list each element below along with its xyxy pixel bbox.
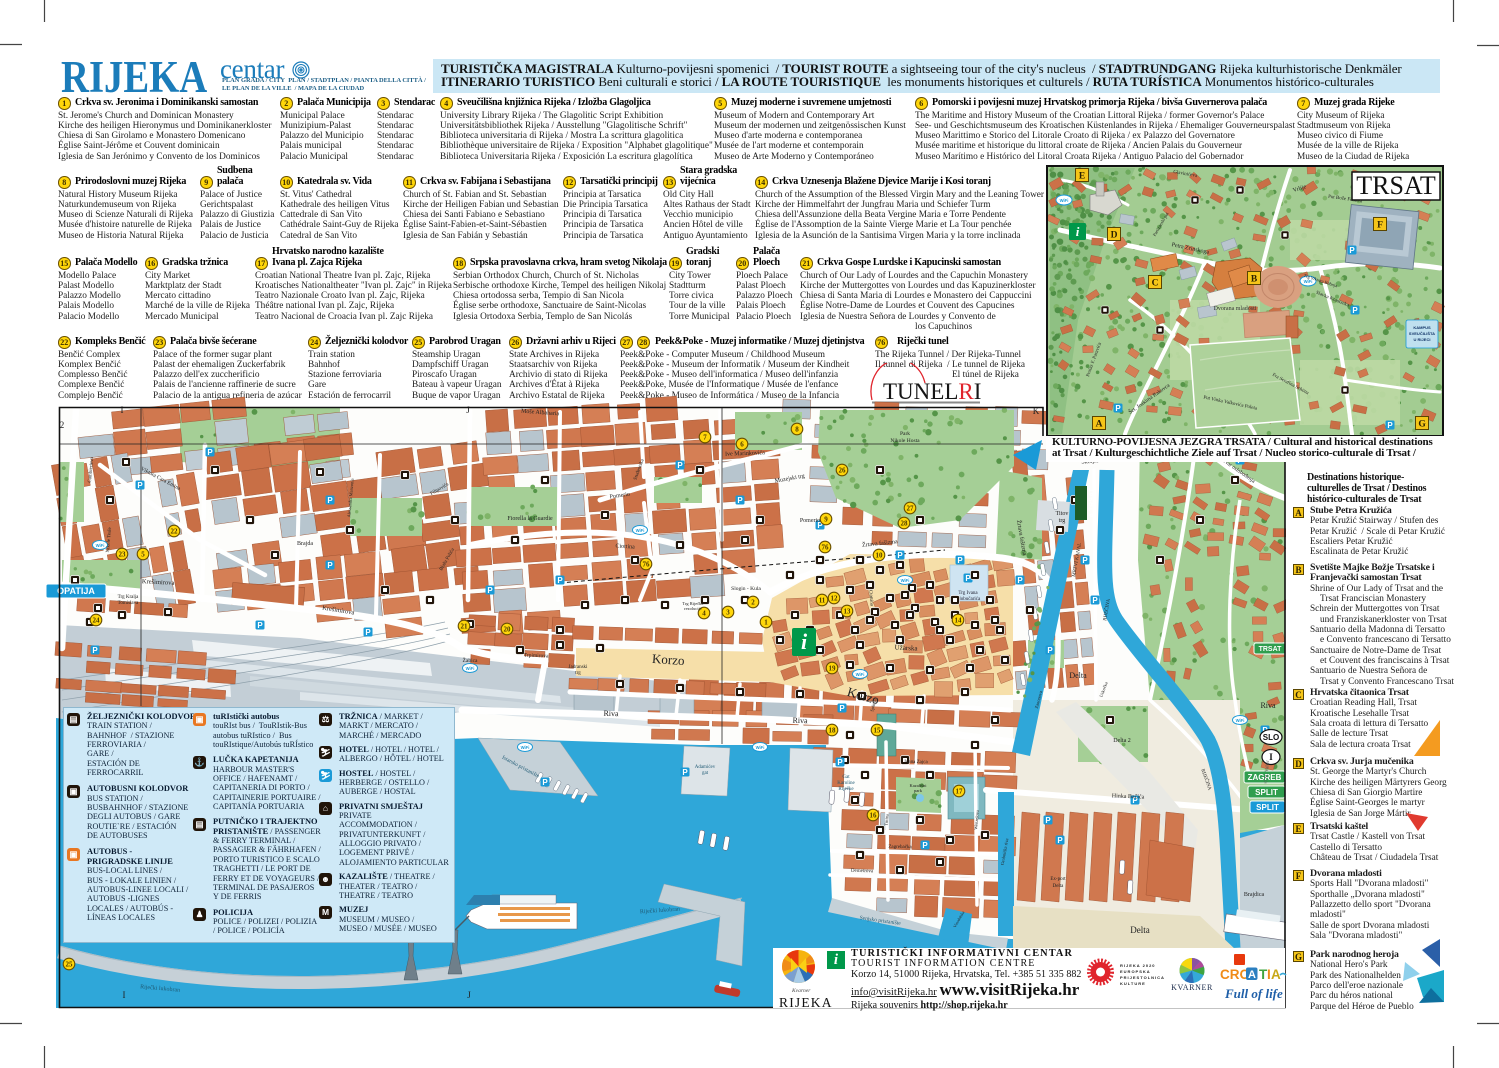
svg-text:12: 12 — [831, 594, 839, 602]
svg-text:28: 28 — [901, 519, 909, 527]
svg-text:4: 4 — [702, 609, 706, 617]
svg-text:P: P — [839, 704, 845, 713]
svg-text:P: P — [487, 586, 493, 595]
svg-text:Riječke: Riječke — [838, 787, 854, 792]
svg-text:J: J — [467, 990, 471, 1000]
svg-text:6: 6 — [740, 440, 744, 448]
svg-text:P: P — [1349, 246, 1355, 255]
svg-text:P: P — [922, 841, 928, 850]
svg-text:17: 17 — [956, 787, 964, 795]
svg-text:P: P — [92, 646, 98, 655]
svg-text:15: 15 — [874, 726, 882, 734]
svg-text:OPATIJA: OPATIJA — [57, 586, 95, 596]
svg-text:U RIJECI: U RIJECI — [1414, 337, 1431, 342]
svg-text:D: D — [1111, 230, 1118, 240]
svg-text:G: G — [1418, 419, 1426, 429]
svg-text:P: P — [1017, 576, 1023, 585]
svg-text:9: 9 — [824, 515, 828, 523]
svg-text:P: P — [1352, 306, 1358, 315]
svg-text:P: P — [1082, 556, 1088, 565]
svg-text:8: 8 — [795, 425, 799, 433]
svg-text:I: I — [123, 990, 126, 1000]
svg-text:Park: Park — [900, 431, 910, 437]
svg-text:P: P — [207, 448, 213, 457]
svg-text:76: 76 — [822, 543, 830, 551]
svg-text:P: P — [557, 576, 563, 585]
svg-text:16: 16 — [870, 811, 878, 819]
svg-text:18: 18 — [829, 726, 837, 734]
svg-text:rezolucije: rezolucije — [684, 606, 702, 611]
svg-text:Riva: Riva — [1260, 701, 1276, 710]
svg-text:P: P — [365, 628, 371, 637]
svg-text:25: 25 — [66, 960, 74, 968]
svg-text:SPLIT: SPLIT — [1256, 803, 1279, 812]
svg-text:Trg Ivana: Trg Ivana — [958, 591, 978, 596]
svg-text:19: 19 — [829, 664, 837, 672]
svg-text:10: 10 — [876, 551, 884, 559]
svg-text:SVEUČILIŠTA: SVEUČILIŠTA — [1409, 331, 1435, 336]
svg-text:5: 5 — [141, 550, 145, 558]
svg-text:P: P — [737, 496, 743, 505]
svg-text:Fiorella la Guardie: Fiorella la Guardie — [507, 516, 553, 522]
svg-text:Tomislava: Tomislava — [118, 601, 140, 606]
svg-text:P: P — [677, 461, 683, 470]
svg-text:E: E — [1079, 171, 1085, 181]
svg-text:F: F — [1377, 220, 1383, 230]
svg-text:22: 22 — [171, 527, 179, 535]
svg-text:Demetrova: Demetrova — [851, 869, 874, 875]
svg-text:B: B — [1251, 274, 1258, 284]
svg-text:trg: trg — [1059, 518, 1066, 524]
svg-text:Titov: Titov — [1056, 511, 1069, 517]
svg-text:Trg Kralja: Trg Kralja — [118, 595, 139, 600]
svg-text:24: 24 — [93, 616, 101, 624]
svg-text:Brajdica: Brajdica — [1244, 892, 1265, 898]
svg-text:3: 3 — [726, 608, 730, 616]
svg-text:Karoline: Karoline — [837, 781, 855, 786]
svg-text:KULTURE: KULTURE — [1120, 981, 1146, 986]
svg-text:2: 2 — [751, 598, 755, 606]
svg-text:P: P — [257, 621, 263, 630]
svg-text:CRO: CRO — [1220, 967, 1250, 982]
svg-text:P: P — [682, 768, 688, 777]
svg-text:J: J — [466, 405, 470, 415]
svg-text:P: P — [1115, 404, 1121, 413]
svg-text:WiFi: WiFi — [756, 745, 765, 750]
svg-text:P: P — [1057, 836, 1063, 845]
svg-text:Brajda: Brajda — [297, 541, 313, 547]
svg-text:Gat: Gat — [842, 775, 850, 780]
svg-text:P: P — [327, 496, 333, 505]
svg-text:C: C — [1152, 278, 1159, 288]
svg-text:park: park — [914, 788, 923, 793]
svg-text:WiFi: WiFi — [96, 543, 105, 548]
svg-text:Kvarner: Kvarner — [791, 988, 811, 994]
svg-text:KAMPUS: KAMPUS — [1413, 325, 1431, 330]
svg-text:P: P — [1045, 816, 1051, 825]
svg-text:P: P — [897, 551, 903, 560]
svg-text:Delta: Delta — [1053, 884, 1065, 889]
svg-text:Riva: Riva — [792, 716, 808, 726]
svg-text:A TRSAT: A TRSAT — [1089, 488, 1096, 518]
svg-text:2: 2 — [60, 420, 65, 430]
svg-text:21: 21 — [461, 622, 469, 630]
svg-text:Delta: Delta — [1130, 925, 1150, 935]
svg-text:Delta 2: Delta 2 — [1113, 738, 1131, 744]
svg-text:P: P — [327, 561, 333, 570]
svg-text:Užarska: Užarska — [894, 643, 918, 652]
svg-text:Full of life: Full of life — [1224, 986, 1283, 1001]
svg-text:i: i — [1076, 224, 1080, 239]
svg-text:27: 27 — [907, 504, 915, 512]
svg-text:RIJEKA 2020: RIJEKA 2020 — [1120, 963, 1156, 968]
svg-text:SPLIT: SPLIT — [1255, 788, 1278, 797]
svg-text:Nikole Hosta: Nikole Hosta — [890, 438, 920, 444]
svg-text:Ivana Zajca: Ivana Zajca — [904, 760, 928, 765]
svg-text:Žabica: Žabica — [463, 656, 479, 664]
svg-text:1: 1 — [764, 618, 768, 626]
svg-text:WiFi: WiFi — [1236, 718, 1245, 723]
svg-text:i: i — [801, 629, 808, 654]
svg-text:Hinka Bačića: Hinka Bačića — [1112, 793, 1145, 800]
svg-text:Trpimirova: Trpimirova — [524, 653, 550, 660]
svg-text:WiFi: WiFi — [521, 745, 530, 750]
svg-text:WiFi: WiFi — [901, 578, 910, 583]
svg-text:P: P — [837, 758, 843, 767]
svg-text:P: P — [542, 778, 548, 787]
svg-text:Pomerio: Pomerio — [800, 518, 820, 524]
svg-text:PRIJESTOLNICA: PRIJESTOLNICA — [1120, 975, 1165, 980]
svg-text:Adamićev: Adamićev — [695, 765, 716, 770]
svg-text:Dvorana mladosti: Dvorana mladosti — [1214, 306, 1257, 312]
svg-text:23: 23 — [119, 550, 127, 558]
svg-text:A: A — [1096, 419, 1103, 429]
svg-text:SLO: SLO — [1263, 733, 1279, 742]
svg-text:gat: gat — [702, 771, 709, 776]
svg-text:P: P — [1092, 596, 1098, 605]
svg-text:WiFi: WiFi — [1060, 198, 1069, 203]
svg-text:RIJEKA: RIJEKA — [779, 995, 833, 1008]
svg-text:Trnina: Trnina — [883, 814, 889, 826]
svg-text:trg: trg — [575, 671, 581, 676]
svg-text:WiFi: WiFi — [856, 672, 865, 677]
svg-text:Ex-port: Ex-port — [1050, 877, 1066, 882]
svg-text:P: P — [957, 556, 963, 565]
svg-text:Zagrebačka: Zagrebačka — [888, 845, 912, 850]
svg-text:14: 14 — [955, 616, 963, 624]
svg-text:TRSAT: TRSAT — [1259, 646, 1283, 653]
svg-text:13: 13 — [844, 607, 852, 615]
svg-text:A: A — [1248, 969, 1256, 981]
svg-text:Korzo: Korzo — [652, 651, 685, 668]
svg-text:TRSAT: TRSAT — [1356, 171, 1436, 200]
svg-text:20: 20 — [504, 625, 512, 633]
svg-text:P: P — [1387, 421, 1393, 430]
svg-text:I: I — [121, 405, 124, 415]
svg-text:Jadranski: Jadranski — [569, 665, 588, 670]
svg-text:26: 26 — [839, 466, 847, 474]
svg-text:7: 7 — [703, 433, 707, 441]
svg-text:76: 76 — [643, 560, 651, 568]
svg-text:Ciottina: Ciottina — [615, 543, 635, 550]
svg-text:WiFi: WiFi — [636, 528, 645, 533]
svg-text:P: P — [137, 481, 143, 490]
svg-text:Delta: Delta — [1069, 671, 1087, 680]
svg-text:WiFi: WiFi — [466, 666, 475, 671]
svg-text:11: 11 — [819, 596, 826, 604]
svg-text:EUROPSKA: EUROPSKA — [1120, 969, 1151, 974]
svg-text:P: P — [1047, 646, 1053, 655]
svg-text:Slogin - Kula: Slogin - Kula — [731, 586, 761, 592]
svg-text:Riva: Riva — [603, 709, 619, 718]
